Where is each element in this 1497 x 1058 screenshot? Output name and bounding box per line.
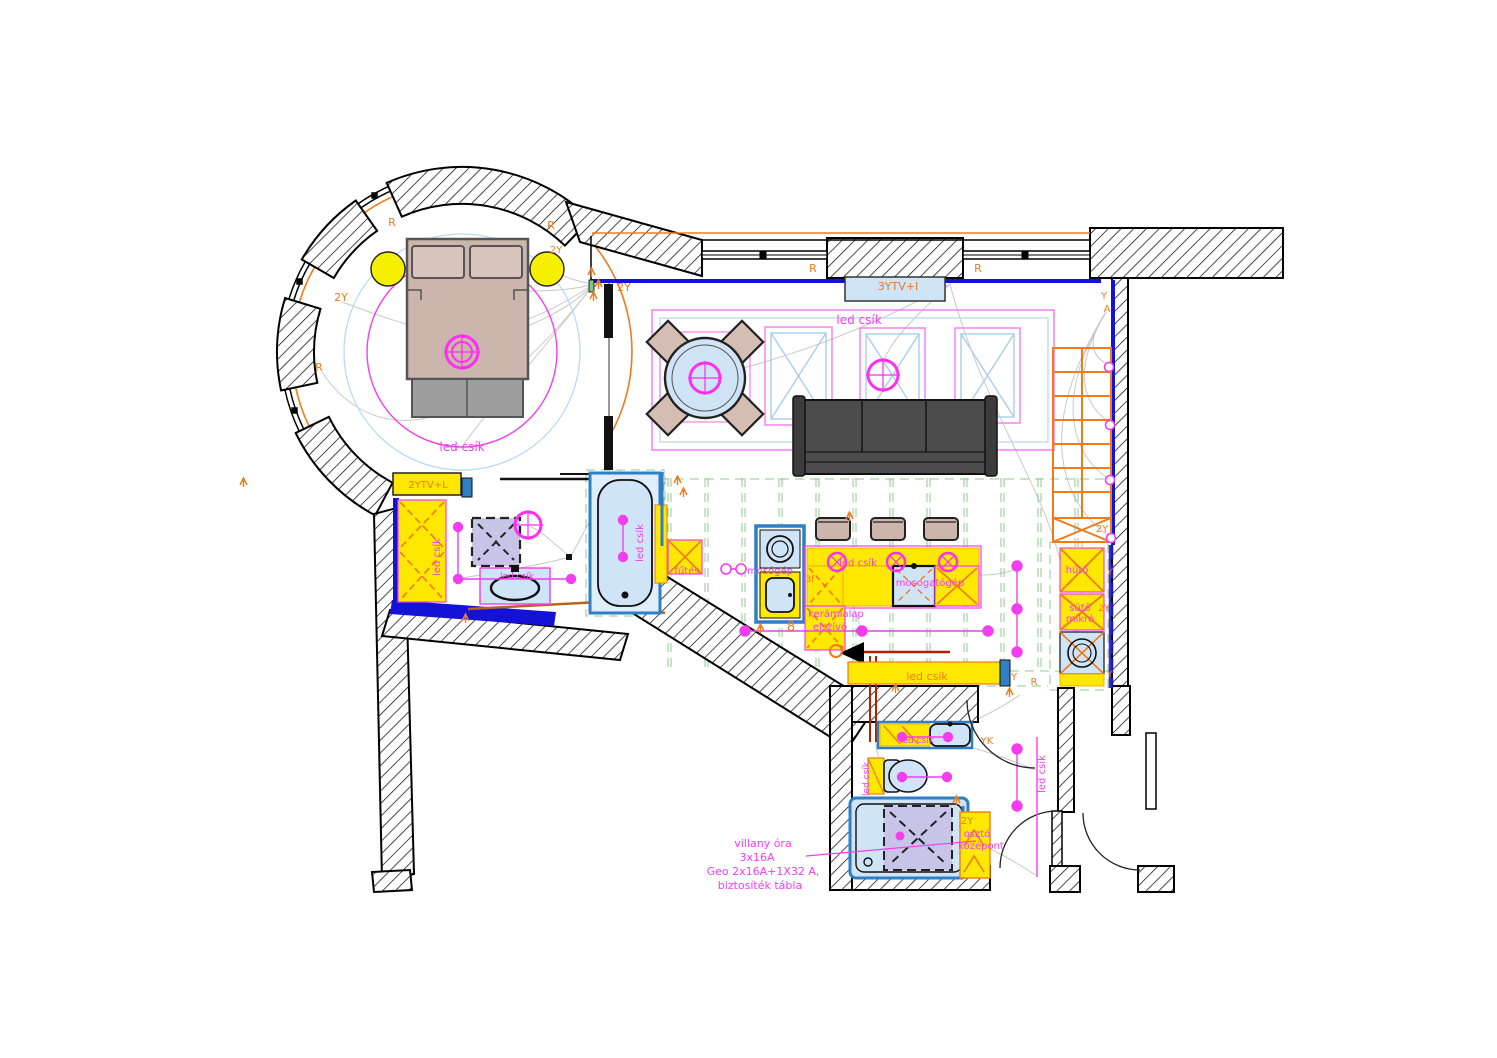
symbol-8: 8 xyxy=(787,620,795,635)
wall-hall-right-band xyxy=(1058,688,1074,812)
label-oven1: sütő xyxy=(1069,602,1091,614)
label-hob2: elszívó xyxy=(813,621,847,633)
entry-post-center xyxy=(1050,866,1080,892)
floor-plan-drawing: led csík R R 2Y R 2Y 2Y R R 3YTV+I led c… xyxy=(0,0,1497,1058)
label-led-bedroom: led csík xyxy=(439,440,484,454)
panel-note-line2: 3x16A xyxy=(739,851,775,864)
socket-label: A xyxy=(1104,304,1111,315)
sofa xyxy=(793,396,997,476)
label-distribution1: osztó xyxy=(964,828,991,840)
label-led-island: led csík xyxy=(839,557,877,569)
pillow-right xyxy=(470,246,522,278)
socket-label: 2Y xyxy=(1098,604,1110,614)
wall-bedroom-lower-left xyxy=(296,417,393,516)
ceiling-light-living xyxy=(866,358,900,392)
wall-right-jog xyxy=(1112,686,1130,735)
label-heater: fűtés xyxy=(674,565,699,577)
socket-label: Y xyxy=(1010,672,1018,683)
label-distribution2: középont xyxy=(958,840,1004,852)
label-tv-bath1: 2YTV+L xyxy=(408,480,448,491)
socket-label: Y xyxy=(1100,291,1108,302)
switch-label: R xyxy=(388,216,396,229)
bar-stools xyxy=(816,518,958,540)
label-led-tub: led csík xyxy=(634,524,646,562)
switch-label: R xyxy=(315,361,323,374)
label-fridge: hűtő xyxy=(1066,564,1089,576)
label-oven2: mikró xyxy=(1066,613,1094,625)
wall-hall-right-stub xyxy=(1146,733,1156,809)
shower-bath2 xyxy=(850,798,968,878)
label-led-living: led csík xyxy=(836,313,881,327)
label-led-hall: led csík xyxy=(1036,755,1048,793)
socket-label: 2Y xyxy=(617,281,631,294)
door-arc-entry-left xyxy=(1000,811,1057,868)
label-led-wardrobe: led csík xyxy=(431,538,443,576)
label-dishwasher: mosogatógép xyxy=(896,577,965,589)
bedside-lamp-right xyxy=(530,252,564,286)
pillow-left xyxy=(412,246,464,278)
panel-note-line4: biztosíték tábla xyxy=(718,879,802,892)
socket-label: 2Y xyxy=(1096,524,1109,535)
socket-label: 2Y xyxy=(334,291,348,304)
switch-label: R xyxy=(809,262,817,275)
label-tv-living: 3YTV+I xyxy=(878,280,918,293)
floor-plan-canvas: led csík R R 2Y R 2Y 2Y R R 3YTV+I led c… xyxy=(0,0,1497,1058)
bathtub-bath1 xyxy=(590,473,660,613)
bedside-lamp-left xyxy=(371,252,405,286)
wall-bedroom-left xyxy=(277,298,320,391)
socket-label: 2Y xyxy=(961,816,974,827)
partition-bedroom-living xyxy=(560,280,613,474)
bed xyxy=(407,239,528,417)
socket-symbols-washer xyxy=(721,564,746,574)
wall-bedroom-top xyxy=(387,167,591,246)
socket-label: Y xyxy=(1106,568,1113,578)
label-led-left2: led csík xyxy=(862,761,872,796)
panel-note-line1: villany óra xyxy=(734,837,791,850)
panel-note-line3: Geo 2x16A+1X32 A, xyxy=(707,865,820,878)
wall-top-mid xyxy=(827,238,963,278)
door-arc-entry-right xyxy=(1083,813,1140,870)
label-phase: 3f xyxy=(806,575,816,585)
entry-post-right xyxy=(1138,866,1174,892)
socket-label: Y xyxy=(1106,670,1113,680)
socket-label: YK xyxy=(980,736,994,747)
switch-label: R xyxy=(547,219,555,232)
wall-top-right-corner xyxy=(1090,228,1283,278)
label-led-basin: led csík xyxy=(500,572,535,582)
socket-label: 2Y xyxy=(550,245,563,256)
label-hob1: kerámialap xyxy=(808,608,864,620)
wall-left-cap xyxy=(372,870,412,892)
entry-door-leaf xyxy=(1052,811,1062,868)
dining-set xyxy=(647,321,763,435)
switch-label: R xyxy=(1031,677,1038,688)
washbasin-bath1 xyxy=(480,565,550,604)
label-led-wall: led csík xyxy=(906,670,948,683)
stairs xyxy=(1053,348,1111,542)
switch-label: R xyxy=(974,262,982,275)
wall-slant-top xyxy=(566,202,702,276)
label-led-basin2: led csík xyxy=(900,736,935,746)
label-washer: mosógép xyxy=(747,565,793,577)
